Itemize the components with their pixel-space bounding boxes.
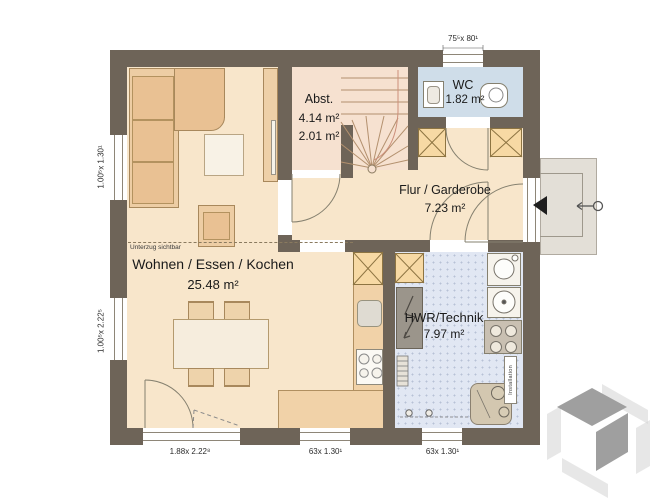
dim-bottom-mid-window: 63x 1.30¹ <box>293 447 358 456</box>
room-area-wc: 1.82 m² <box>434 94 496 106</box>
sofa-chaise <box>174 68 225 131</box>
kitchen-counter-bottom <box>278 390 383 428</box>
wall-segment <box>523 242 540 445</box>
washing-machine <box>487 253 521 286</box>
terrace-door-bottom <box>143 428 240 445</box>
installation-shaft <box>490 128 522 157</box>
wall-segment <box>523 50 540 178</box>
doorway-wc <box>446 117 490 128</box>
beam-note: Unterzug sichtbar <box>130 244 181 251</box>
dim-bottom-right-window: 63x 1.30¹ <box>410 447 475 456</box>
room-area-abst-2: 2.01 m² <box>286 129 352 143</box>
wall-segment <box>110 50 443 67</box>
dim-left-upper-window: 1.00⁵x 1.30¹ <box>97 145 106 188</box>
dining-chair <box>188 368 214 387</box>
installation-shaft <box>395 253 424 283</box>
room-label-wohnen: Wohnen / Essen / Kochen <box>118 256 308 272</box>
room-area-abst-1: 4.14 m² <box>286 111 352 125</box>
beam-line <box>128 242 353 243</box>
wall-segment <box>418 117 446 128</box>
room-area-hwr: 7.97 m² <box>398 327 490 341</box>
dining-table <box>173 319 269 369</box>
dim-top-window: 75⁵x 80¹ <box>428 34 498 43</box>
window-left-lower <box>110 298 127 360</box>
wall-segment <box>345 240 430 252</box>
doorway-abst <box>292 170 340 178</box>
sofa-cushion <box>132 76 174 120</box>
coffee-table <box>204 134 244 176</box>
doorway-living-flur <box>278 180 292 235</box>
window-left-upper <box>110 135 127 200</box>
doorway-hwr <box>430 240 488 252</box>
floor-plan-canvas: Wohnen / Essen / Kochen 25.48 m² Abst. 4… <box>0 0 650 499</box>
dim-left-lower-window: 1.00⁵x 2.22⁵ <box>97 309 106 353</box>
room-label-hwr: HWR/Technik <box>398 310 490 325</box>
dining-chair <box>224 368 250 387</box>
kitchen-sink <box>357 300 382 327</box>
wall-segment <box>350 428 422 445</box>
room-label-flur: Flur / Garderobe <box>380 183 510 197</box>
dim-terrace-door: 1.88x 2.22⁸ <box>155 447 225 456</box>
room-area-flur: 7.23 m² <box>380 201 510 215</box>
wall-segment <box>462 428 540 445</box>
wall-segment <box>110 50 127 135</box>
armchair-cushion <box>203 212 230 240</box>
room-label-wc: WC <box>446 78 480 92</box>
entrance-porch-step <box>540 173 583 237</box>
wall-segment <box>240 428 300 445</box>
sofa-cushion <box>132 120 174 162</box>
window-bottom-right <box>422 428 462 445</box>
wall-segment <box>490 117 523 128</box>
dining-chair <box>188 301 214 320</box>
sofa-cushion <box>132 162 174 204</box>
wall-segment <box>408 67 418 170</box>
tv-screen <box>271 120 276 175</box>
window-bottom-mid <box>300 428 350 445</box>
dining-chair <box>224 301 250 320</box>
installation-note-text: Installation <box>508 365 514 395</box>
room-area-wohnen: 25.48 m² <box>118 277 308 292</box>
brand-watermark-cube-icon <box>547 384 650 498</box>
installation-shaft <box>418 128 446 157</box>
window-top-wc <box>443 50 483 67</box>
wall-segment <box>278 235 292 252</box>
installation-note: Installation <box>504 356 517 404</box>
installation-shaft <box>353 252 383 285</box>
wall-segment <box>110 428 143 445</box>
dryer <box>487 287 521 318</box>
kitchen-stove <box>356 349 383 385</box>
wall-segment <box>488 240 523 252</box>
entrance-door-leaf <box>523 178 540 242</box>
wall-segment <box>383 252 395 428</box>
room-label-abst: Abst. <box>286 92 352 106</box>
